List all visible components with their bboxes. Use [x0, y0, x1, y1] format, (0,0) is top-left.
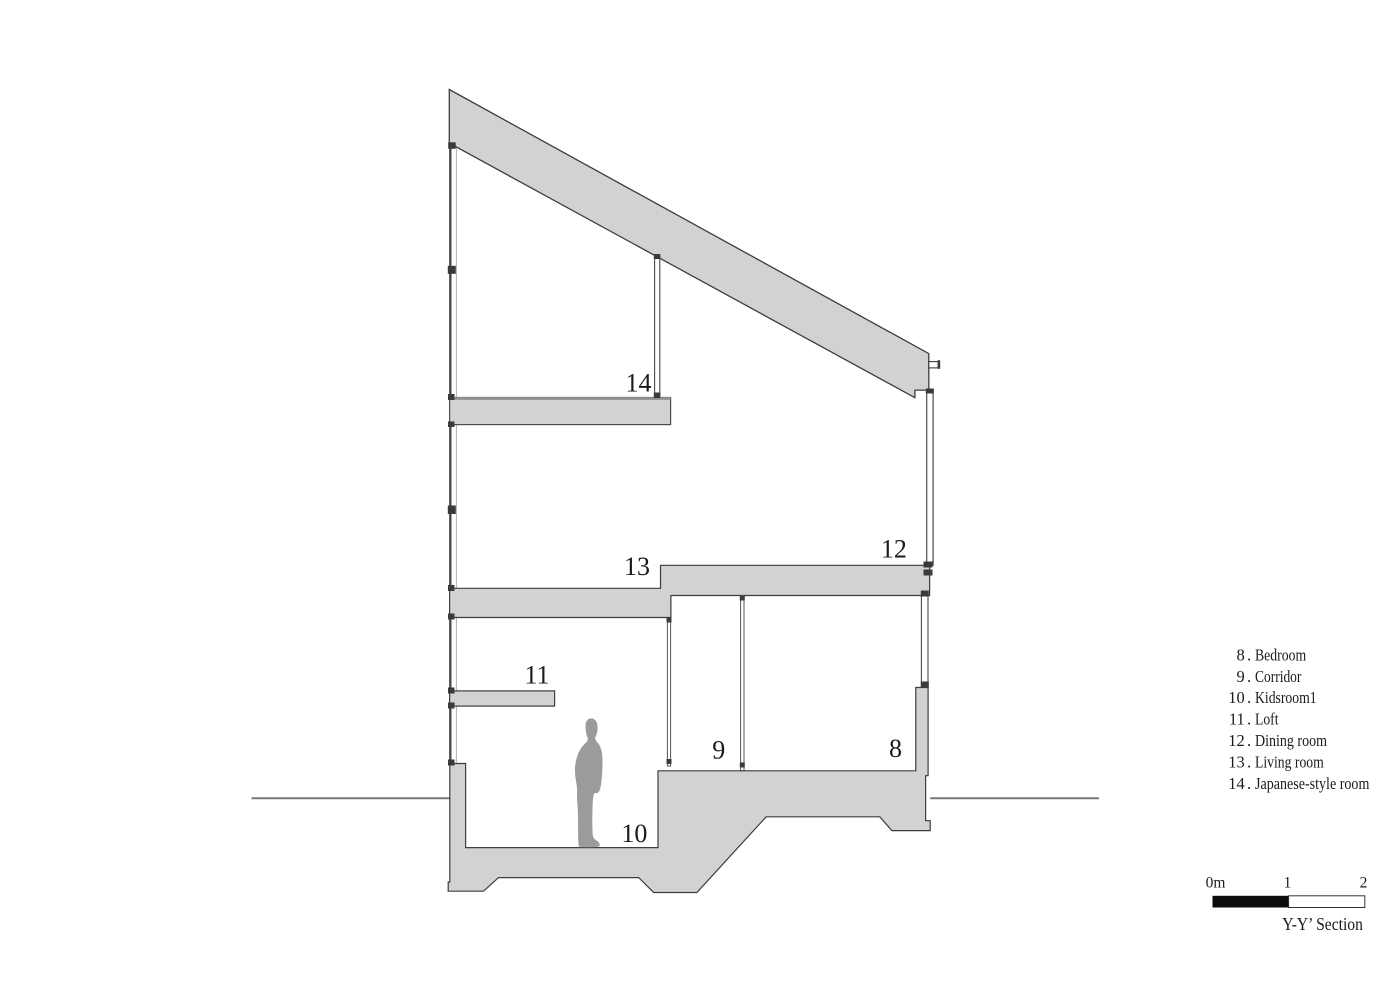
svg-text:8: 8	[889, 734, 902, 763]
svg-text:.: .	[1247, 646, 1251, 665]
svg-text:9: 9	[712, 736, 725, 765]
svg-text:Dining room: Dining room	[1255, 731, 1327, 750]
svg-text:.: .	[1247, 774, 1251, 793]
svg-text:10: 10	[1228, 688, 1245, 707]
svg-text:2: 2	[1360, 875, 1368, 892]
svg-text:12: 12	[1228, 731, 1245, 750]
svg-text:Loft: Loft	[1255, 710, 1279, 729]
svg-text:.: .	[1247, 731, 1251, 750]
svg-text:14: 14	[626, 369, 652, 398]
svg-text:.: .	[1247, 688, 1251, 707]
svg-text:Corridor: Corridor	[1255, 667, 1302, 686]
svg-text:Y-Y’ Section: Y-Y’ Section	[1282, 914, 1363, 934]
svg-text:9: 9	[1237, 667, 1245, 686]
svg-text:Kidsroom1: Kidsroom1	[1255, 688, 1317, 707]
svg-text:0m: 0m	[1206, 875, 1226, 892]
svg-text:13: 13	[624, 552, 650, 581]
svg-text:13: 13	[1228, 752, 1245, 771]
svg-text:11: 11	[524, 660, 549, 689]
svg-text:11: 11	[1229, 710, 1245, 729]
svg-text:1: 1	[1284, 875, 1292, 892]
svg-text:.: .	[1247, 667, 1251, 686]
svg-text:Living room: Living room	[1255, 752, 1324, 771]
svg-text:8: 8	[1237, 646, 1245, 665]
svg-text:.: .	[1247, 752, 1251, 771]
svg-text:Japanese-style room: Japanese-style room	[1255, 774, 1370, 793]
svg-text:.: .	[1247, 710, 1251, 729]
svg-text:12: 12	[881, 535, 907, 564]
svg-text:Bedroom: Bedroom	[1255, 646, 1306, 665]
svg-text:10: 10	[621, 819, 647, 848]
svg-text:14: 14	[1228, 774, 1245, 793]
